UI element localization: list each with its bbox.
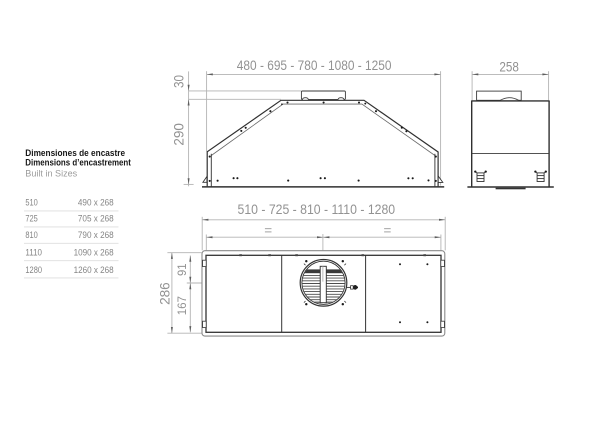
- svg-text:Built in Sizes: Built in Sizes: [25, 168, 77, 179]
- svg-text:91: 91: [177, 263, 189, 276]
- svg-text:30: 30: [172, 75, 187, 88]
- svg-text:705 x 268: 705 x 268: [78, 214, 114, 224]
- svg-text:Dimensions d’encastrement: Dimensions d’encastrement: [25, 158, 131, 169]
- svg-text:286: 286: [157, 282, 173, 305]
- svg-text:1260 x 268: 1260 x 268: [74, 265, 114, 275]
- svg-text:167: 167: [177, 296, 189, 315]
- svg-text:725: 725: [25, 214, 37, 224]
- svg-text:1110: 1110: [25, 248, 42, 258]
- svg-text:810: 810: [25, 230, 37, 240]
- svg-text:1090 x 268: 1090 x 268: [74, 248, 114, 258]
- svg-text:480 - 695 - 780 - 1080 - 1250: 480 - 695 - 780 - 1080 - 1250: [237, 57, 392, 73]
- svg-text:1280: 1280: [25, 265, 42, 275]
- svg-text:790 x 268: 790 x 268: [78, 230, 114, 240]
- svg-text:510: 510: [25, 197, 37, 207]
- svg-text:290: 290: [171, 123, 187, 146]
- svg-text:490 x 268: 490 x 268: [78, 197, 114, 207]
- svg-text:510 - 725 - 810 - 1110 - 1280: 510 - 725 - 810 - 1110 - 1280: [238, 201, 396, 217]
- svg-text:258: 258: [499, 59, 519, 75]
